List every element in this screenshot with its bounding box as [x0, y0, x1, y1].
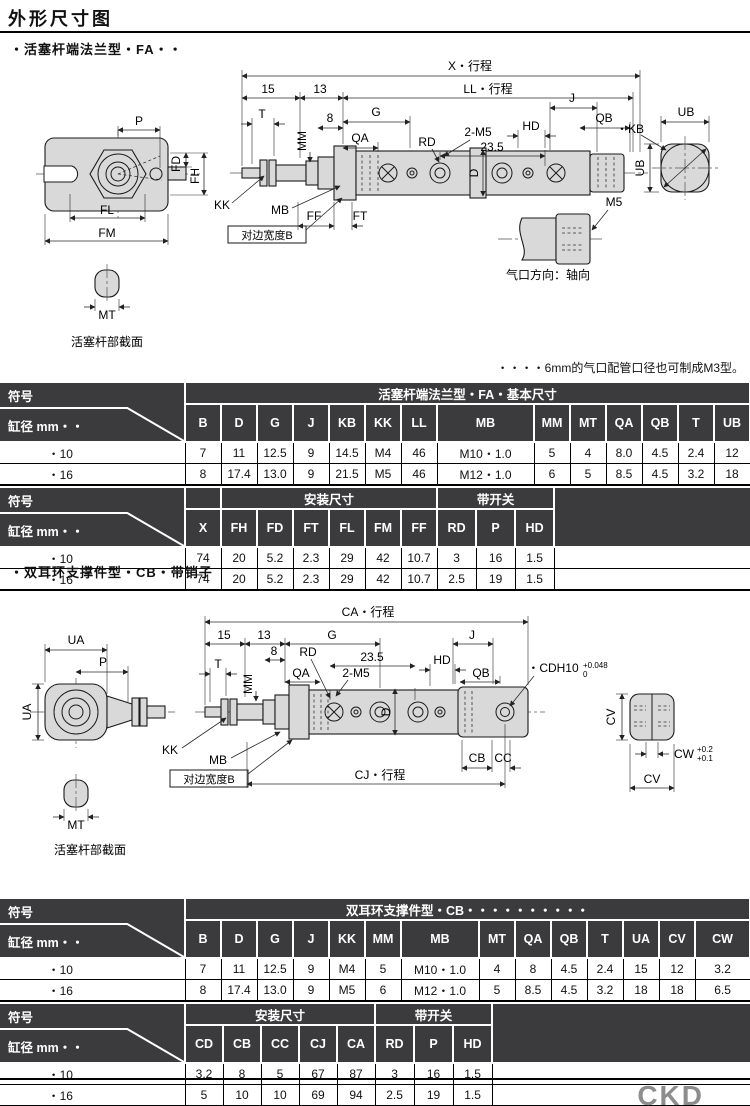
bore-row-label: ・10	[0, 1063, 185, 1085]
column-header: KK	[365, 404, 401, 442]
dim-value-cell: 13.0	[257, 980, 293, 1002]
column-header: T	[678, 404, 714, 442]
dim-value-cell: 5	[570, 464, 606, 486]
column-header: MT	[570, 404, 606, 442]
dim-value-cell: 46	[401, 464, 437, 486]
column-header: CA	[337, 1025, 375, 1063]
column-header: MM	[534, 404, 570, 442]
dim-value-cell: 9	[293, 958, 329, 980]
dim-value-cell: 8.5	[515, 980, 551, 1002]
column-header: FM	[365, 509, 401, 547]
dim-value-cell: 11	[221, 958, 257, 980]
table-corner-cell: 符号 缸径 mm・・	[0, 898, 185, 958]
dim-value-cell: 1.5	[515, 569, 554, 591]
column-header: D	[221, 404, 257, 442]
bore-row-label: ・10	[0, 958, 185, 980]
dim-value-cell: 5	[261, 1063, 299, 1085]
cdh10-tolerance-upper: +0.048	[583, 661, 608, 670]
dim-label-rd: RD	[418, 135, 436, 149]
dim-value-cell: 4.5	[551, 958, 587, 980]
dim-value-cell: 10.7	[401, 547, 437, 569]
dim-value-cell: 5	[365, 958, 401, 980]
rod-section-caption: 活塞杆部截面	[71, 334, 143, 349]
dim-label-235b: 23.5	[360, 650, 384, 664]
dim-label-qa: QA	[351, 131, 368, 145]
dim-label-cw: CW	[674, 747, 695, 761]
dim-value-cell: M4	[365, 442, 401, 464]
column-header: J	[293, 920, 329, 958]
dim-value-cell: 17.4	[221, 464, 257, 486]
dim-label-13: 13	[313, 82, 327, 96]
column-header: B	[185, 920, 221, 958]
column-header: RD	[375, 1025, 414, 1063]
fa-end-view: ・KB UB UB	[616, 105, 718, 200]
dim-label-kb: ・KB	[616, 122, 644, 136]
dim-label-hd: HD	[522, 119, 540, 133]
port-note: ・・・・6mm的气口配管口径也可制成M3型。	[497, 359, 744, 376]
dim-label-15: 15	[261, 82, 275, 96]
dim-value-cell: 2.3	[293, 569, 329, 591]
dim-label-mm: MM	[295, 131, 309, 151]
dim-value-cell: 8	[185, 980, 221, 1002]
dim-label-cj-stroke: CJ・行程	[355, 767, 406, 782]
dim-label-ff: FF	[307, 209, 322, 223]
dim-value-cell: 3.2	[185, 1063, 223, 1085]
column-header: P	[476, 509, 515, 547]
dim-label-2m5: 2-M5	[464, 125, 492, 139]
title-rule	[0, 31, 750, 33]
dim-value-cell: 19	[476, 569, 515, 591]
dim-label-kk: KK	[214, 198, 230, 212]
empty-cell	[492, 1085, 750, 1106]
dim-value-cell: 8.0	[606, 442, 642, 464]
corner-symbol-label: 符号	[8, 1007, 33, 1026]
rod-section-caption-2: 活塞杆部截面	[54, 842, 126, 857]
group-header-switch: 带开关	[375, 1003, 492, 1025]
dim-value-cell: 19	[414, 1085, 453, 1106]
dim-label-fm: FM	[98, 226, 115, 240]
dim-label-mb: MB	[271, 203, 289, 217]
dim-value-cell: 4.5	[551, 980, 587, 1002]
dim-value-cell: 16	[476, 547, 515, 569]
dim-label-cv-bottom: CV	[644, 772, 661, 786]
dim-value-cell: 2.4	[678, 442, 714, 464]
dim-value-cell: 5	[534, 442, 570, 464]
port-direction-caption: 气口方向：轴向	[506, 267, 590, 282]
dim-label-rdb: RD	[299, 645, 317, 659]
dim-label-mbb: MB	[209, 753, 227, 767]
column-header: MB	[401, 920, 479, 958]
bore-row-label: ・16	[0, 464, 185, 486]
dim-label-fh: FH	[188, 168, 202, 184]
dim-value-cell: 18	[623, 980, 659, 1002]
column-header: QA	[515, 920, 551, 958]
column-header: CC	[261, 1025, 299, 1063]
dim-value-cell: 67	[299, 1063, 337, 1085]
dim-value-cell: 10.7	[401, 569, 437, 591]
cw-tolerance-upper: +0.2	[697, 745, 713, 754]
column-header: MM	[365, 920, 401, 958]
empty-cell	[492, 1063, 750, 1085]
dim-value-cell: 8	[515, 958, 551, 980]
column-header: UB	[714, 404, 750, 442]
corner-bore-label: 缸径 mm・・	[8, 521, 84, 540]
dim-value-cell: 12.5	[257, 958, 293, 980]
group-header-install: 安装尺寸	[185, 1003, 375, 1025]
dim-label-ll-stroke: LL・行程	[463, 81, 512, 96]
dim-label-jb: J	[469, 628, 475, 642]
dim-value-cell: 15	[623, 958, 659, 980]
dim-value-cell: 17.4	[221, 980, 257, 1002]
column-header: MB	[437, 404, 534, 442]
fa-dimension-drawing: P FD FH FL FM MT 活塞杆部截面	[0, 56, 750, 378]
dim-value-cell: 20	[221, 547, 257, 569]
cw-tolerance-lower: +0.1	[697, 754, 713, 763]
dim-value-cell: 9	[293, 442, 329, 464]
column-header: P	[414, 1025, 453, 1063]
dim-value-cell: 18	[659, 980, 695, 1002]
fa-spec-tables: 符号 缸径 mm・・ 活塞杆端法兰型・FA・基本尺寸 BDGJKBKKLLMBM…	[0, 381, 750, 591]
dim-label-tb: T	[214, 657, 222, 671]
dim-value-cell: 2.5	[375, 1085, 414, 1106]
dim-value-cell: M12・1.0	[437, 464, 534, 486]
empty-cell	[554, 569, 750, 591]
group-header-blank	[185, 487, 221, 509]
column-header: MT	[479, 920, 515, 958]
dim-value-cell: M10・1.0	[401, 958, 479, 980]
group-header-install: 安装尺寸	[221, 487, 437, 509]
dim-value-cell: 6.5	[695, 980, 750, 1002]
dim-value-cell: 10	[261, 1085, 299, 1106]
column-header: CJ	[299, 1025, 337, 1063]
dim-value-cell: 2.4	[587, 958, 623, 980]
dim-label-d2: D	[379, 707, 393, 716]
dim-value-cell: 11	[221, 442, 257, 464]
column-header: QB	[642, 404, 678, 442]
dim-label-flat-width-b2: 对边宽度B	[183, 772, 234, 786]
dim-value-cell: 8	[223, 1063, 261, 1085]
fa-flange-front-view: P FD FH FL FM	[36, 114, 208, 245]
dim-value-cell: 5.2	[257, 547, 293, 569]
dim-value-cell: 21.5	[329, 464, 365, 486]
dim-label-fd: FD	[169, 156, 183, 172]
dim-value-cell: M4	[329, 958, 365, 980]
dim-value-cell: 87	[337, 1063, 375, 1085]
dim-value-cell: 8	[185, 464, 221, 486]
empty-cell	[554, 547, 750, 569]
column-header: RD	[437, 509, 476, 547]
dim-value-cell: 1.5	[453, 1063, 492, 1085]
dim-value-cell: 3	[375, 1063, 414, 1085]
column-header: UA	[623, 920, 659, 958]
dim-value-cell: 3.2	[695, 958, 750, 980]
page-title: 外形尺寸图	[8, 5, 113, 31]
dim-value-cell: 5	[479, 980, 515, 1002]
column-header: KK	[329, 920, 365, 958]
dim-label-23-5: 23.5	[480, 140, 504, 154]
dim-label-ua-top: UA	[68, 633, 85, 647]
dim-value-cell: 6	[534, 464, 570, 486]
dim-value-cell: 3.2	[587, 980, 623, 1002]
table-corner-cell: 符号 缸径 mm・・	[0, 1003, 185, 1063]
dim-label-13b: 13	[257, 628, 271, 642]
dim-value-cell: 2.5	[437, 569, 476, 591]
group-header-switch: 带开关	[437, 487, 554, 509]
cb-rod-section-view: MT 活塞杆部截面	[53, 774, 126, 857]
dim-label-ca-stroke: CA・行程	[342, 604, 395, 619]
dim-label-m5: M5	[606, 195, 623, 209]
group-header-filler	[554, 487, 750, 547]
dim-value-cell: 9	[293, 464, 329, 486]
dim-label-p: P	[135, 114, 143, 128]
column-header: FD	[257, 509, 293, 547]
cb-basic-dim-table: 符号 缸径 mm・・ 双耳环支撑件型・CB・・・・・・・・・・ BDGJKKMM…	[0, 897, 750, 1002]
dim-label-ub-side: UB	[633, 160, 647, 177]
dim-value-cell: 13.0	[257, 464, 293, 486]
column-header: HD	[515, 509, 554, 547]
dim-label-cb: CB	[469, 751, 486, 765]
column-header: FL	[329, 509, 365, 547]
column-header: J	[293, 404, 329, 442]
column-header: FF	[401, 509, 437, 547]
dim-value-cell: M10・1.0	[437, 442, 534, 464]
dim-label-mt2: MT	[67, 818, 85, 832]
dim-value-cell: 18	[714, 464, 750, 486]
dim-label-2m5b: 2-M5	[342, 666, 370, 680]
column-header: QA	[606, 404, 642, 442]
fa-drawing: P FD FH FL FM MT 活塞杆部截面	[0, 56, 750, 378]
corner-symbol-label: 符号	[8, 902, 33, 921]
table-corner-cell: 符号 缸径 mm・・	[0, 487, 185, 547]
dim-value-cell: 2.3	[293, 547, 329, 569]
column-header: KB	[329, 404, 365, 442]
dim-label-d: D	[467, 168, 481, 177]
dim-label-fl: FL	[100, 203, 114, 217]
cdh10-tolerance-lower: 0	[583, 670, 588, 679]
column-header: CB	[223, 1025, 261, 1063]
group-header-cb: 双耳环支撑件型・CB・・・・・・・・・・	[185, 898, 750, 920]
dim-value-cell: 7	[185, 958, 221, 980]
dim-label-mmb: MM	[241, 674, 255, 694]
dim-value-cell: 6	[365, 980, 401, 1002]
fa-axial-port-view: M5 气口方向：轴向	[498, 195, 623, 282]
dim-label-8: 8	[327, 111, 334, 125]
dim-value-cell: 29	[329, 569, 365, 591]
fa-rod-section-view: MT 活塞杆部截面	[71, 264, 143, 349]
dim-value-cell: 46	[401, 442, 437, 464]
dim-value-cell: 94	[337, 1085, 375, 1106]
column-header: CW	[695, 920, 750, 958]
group-header-basic: 活塞杆端法兰型・FA・基本尺寸	[185, 382, 750, 404]
bore-row-label: ・16	[0, 1085, 185, 1106]
cb-cylinder-side-view: D CA・行程 15 13 G 8 RD 23.5 QA 2-M5	[162, 604, 608, 788]
dim-label-ua-side: UA	[20, 704, 34, 721]
dim-label-mt: MT	[98, 308, 116, 322]
dim-value-cell: 16	[414, 1063, 453, 1085]
dim-value-cell: 4	[570, 442, 606, 464]
column-header: G	[257, 404, 293, 442]
dim-label-ub-top: UB	[678, 105, 695, 119]
column-header: CV	[659, 920, 695, 958]
dim-label-cv-side: CV	[604, 709, 618, 726]
dim-value-cell: M12・1.0	[401, 980, 479, 1002]
dim-value-cell: 5	[185, 1085, 223, 1106]
dim-value-cell: M5	[365, 464, 401, 486]
dim-value-cell: 4.5	[642, 442, 678, 464]
dim-label-t: T	[258, 107, 266, 121]
column-header: T	[587, 920, 623, 958]
dim-label-kkb: KK	[162, 743, 178, 757]
dim-label-15b: 15	[217, 628, 231, 642]
dim-value-cell: 42	[365, 547, 401, 569]
column-header: X	[185, 509, 221, 547]
column-header: G	[257, 920, 293, 958]
cb-spec-tables: 符号 缸径 mm・・ 双耳环支撑件型・CB・・・・・・・・・・ BDGJKKMM…	[0, 897, 750, 1106]
dim-value-cell: 4	[479, 958, 515, 980]
group-header-filler	[492, 1003, 750, 1063]
corner-bore-label: 缸径 mm・・	[8, 416, 84, 435]
dim-label-p2: P	[99, 655, 107, 669]
dim-value-cell: 9	[293, 980, 329, 1002]
dim-value-cell: 4.5	[642, 464, 678, 486]
column-header: FT	[293, 509, 329, 547]
dim-value-cell: 12	[714, 442, 750, 464]
bore-row-label: ・10	[0, 442, 185, 464]
dim-value-cell: 29	[329, 547, 365, 569]
dim-value-cell: 14.5	[329, 442, 365, 464]
dim-label-ft: FT	[353, 209, 368, 223]
dim-label-qbb: QB	[472, 666, 489, 680]
corner-symbol-label: 符号	[8, 491, 33, 510]
cb-drawing: UA P UA MT 活塞杆部截面	[0, 592, 750, 892]
dim-value-cell: 10	[223, 1085, 261, 1106]
dim-value-cell: 1.5	[515, 547, 554, 569]
cb-clevis-front-view: UA P UA	[20, 633, 175, 748]
dim-value-cell: 5.2	[257, 569, 293, 591]
dim-value-cell: 3	[437, 547, 476, 569]
cb-end-view: CV CW +0.2 +0.1 CV	[604, 694, 713, 792]
column-header: QB	[551, 920, 587, 958]
column-header: D	[221, 920, 257, 958]
column-header: B	[185, 404, 221, 442]
dim-value-cell: 69	[299, 1085, 337, 1106]
dim-value-cell: 8.5	[606, 464, 642, 486]
dim-label-qb: QB	[595, 111, 612, 125]
column-header: FH	[221, 509, 257, 547]
dim-label-qab: QA	[292, 666, 309, 680]
table-corner-cell: 符号 缸径 mm・・	[0, 382, 185, 442]
dim-value-cell: 42	[365, 569, 401, 591]
column-header: LL	[401, 404, 437, 442]
corner-symbol-label: 符号	[8, 386, 33, 405]
dim-label-8b: 8	[271, 644, 278, 658]
cb-dimension-drawing: UA P UA MT 活塞杆部截面	[0, 592, 750, 892]
dim-label-cc: CC	[494, 751, 512, 765]
fa-basic-dim-table: 符号 缸径 mm・・ 活塞杆端法兰型・FA・基本尺寸 BDGJKBKKLLMBM…	[0, 381, 750, 486]
corner-bore-label: 缸径 mm・・	[8, 1037, 84, 1056]
dim-value-cell: 20	[221, 569, 257, 591]
catalog-page: 外形尺寸图 ・活塞杆端法兰型・FA・・ P	[0, 0, 750, 1106]
dim-label-x-stroke: X・行程	[448, 58, 492, 73]
dim-value-cell: M5	[329, 980, 365, 1002]
dim-label-g: G	[371, 105, 380, 119]
dim-label-hdb: HD	[433, 653, 451, 667]
dim-label-j: J	[569, 91, 575, 105]
column-header: HD	[453, 1025, 492, 1063]
ckd-logo: CKD	[637, 1080, 704, 1106]
dim-value-cell: 12.5	[257, 442, 293, 464]
dim-value-cell: 7	[185, 442, 221, 464]
dim-value-cell: 1.5	[453, 1085, 492, 1106]
corner-bore-label: 缸径 mm・・	[8, 932, 84, 951]
column-header: CD	[185, 1025, 223, 1063]
dim-value-cell: 3.2	[678, 464, 714, 486]
bore-row-label: ・16	[0, 980, 185, 1002]
dim-label-cdh10: ・CDH10	[527, 661, 579, 675]
dim-label-flat-width-b: 对边宽度B	[241, 228, 292, 242]
dim-label-gb: G	[327, 628, 336, 642]
dim-value-cell: 12	[659, 958, 695, 980]
section-cb-heading: ・双耳环支撑件型・CB・带销子	[10, 562, 213, 581]
